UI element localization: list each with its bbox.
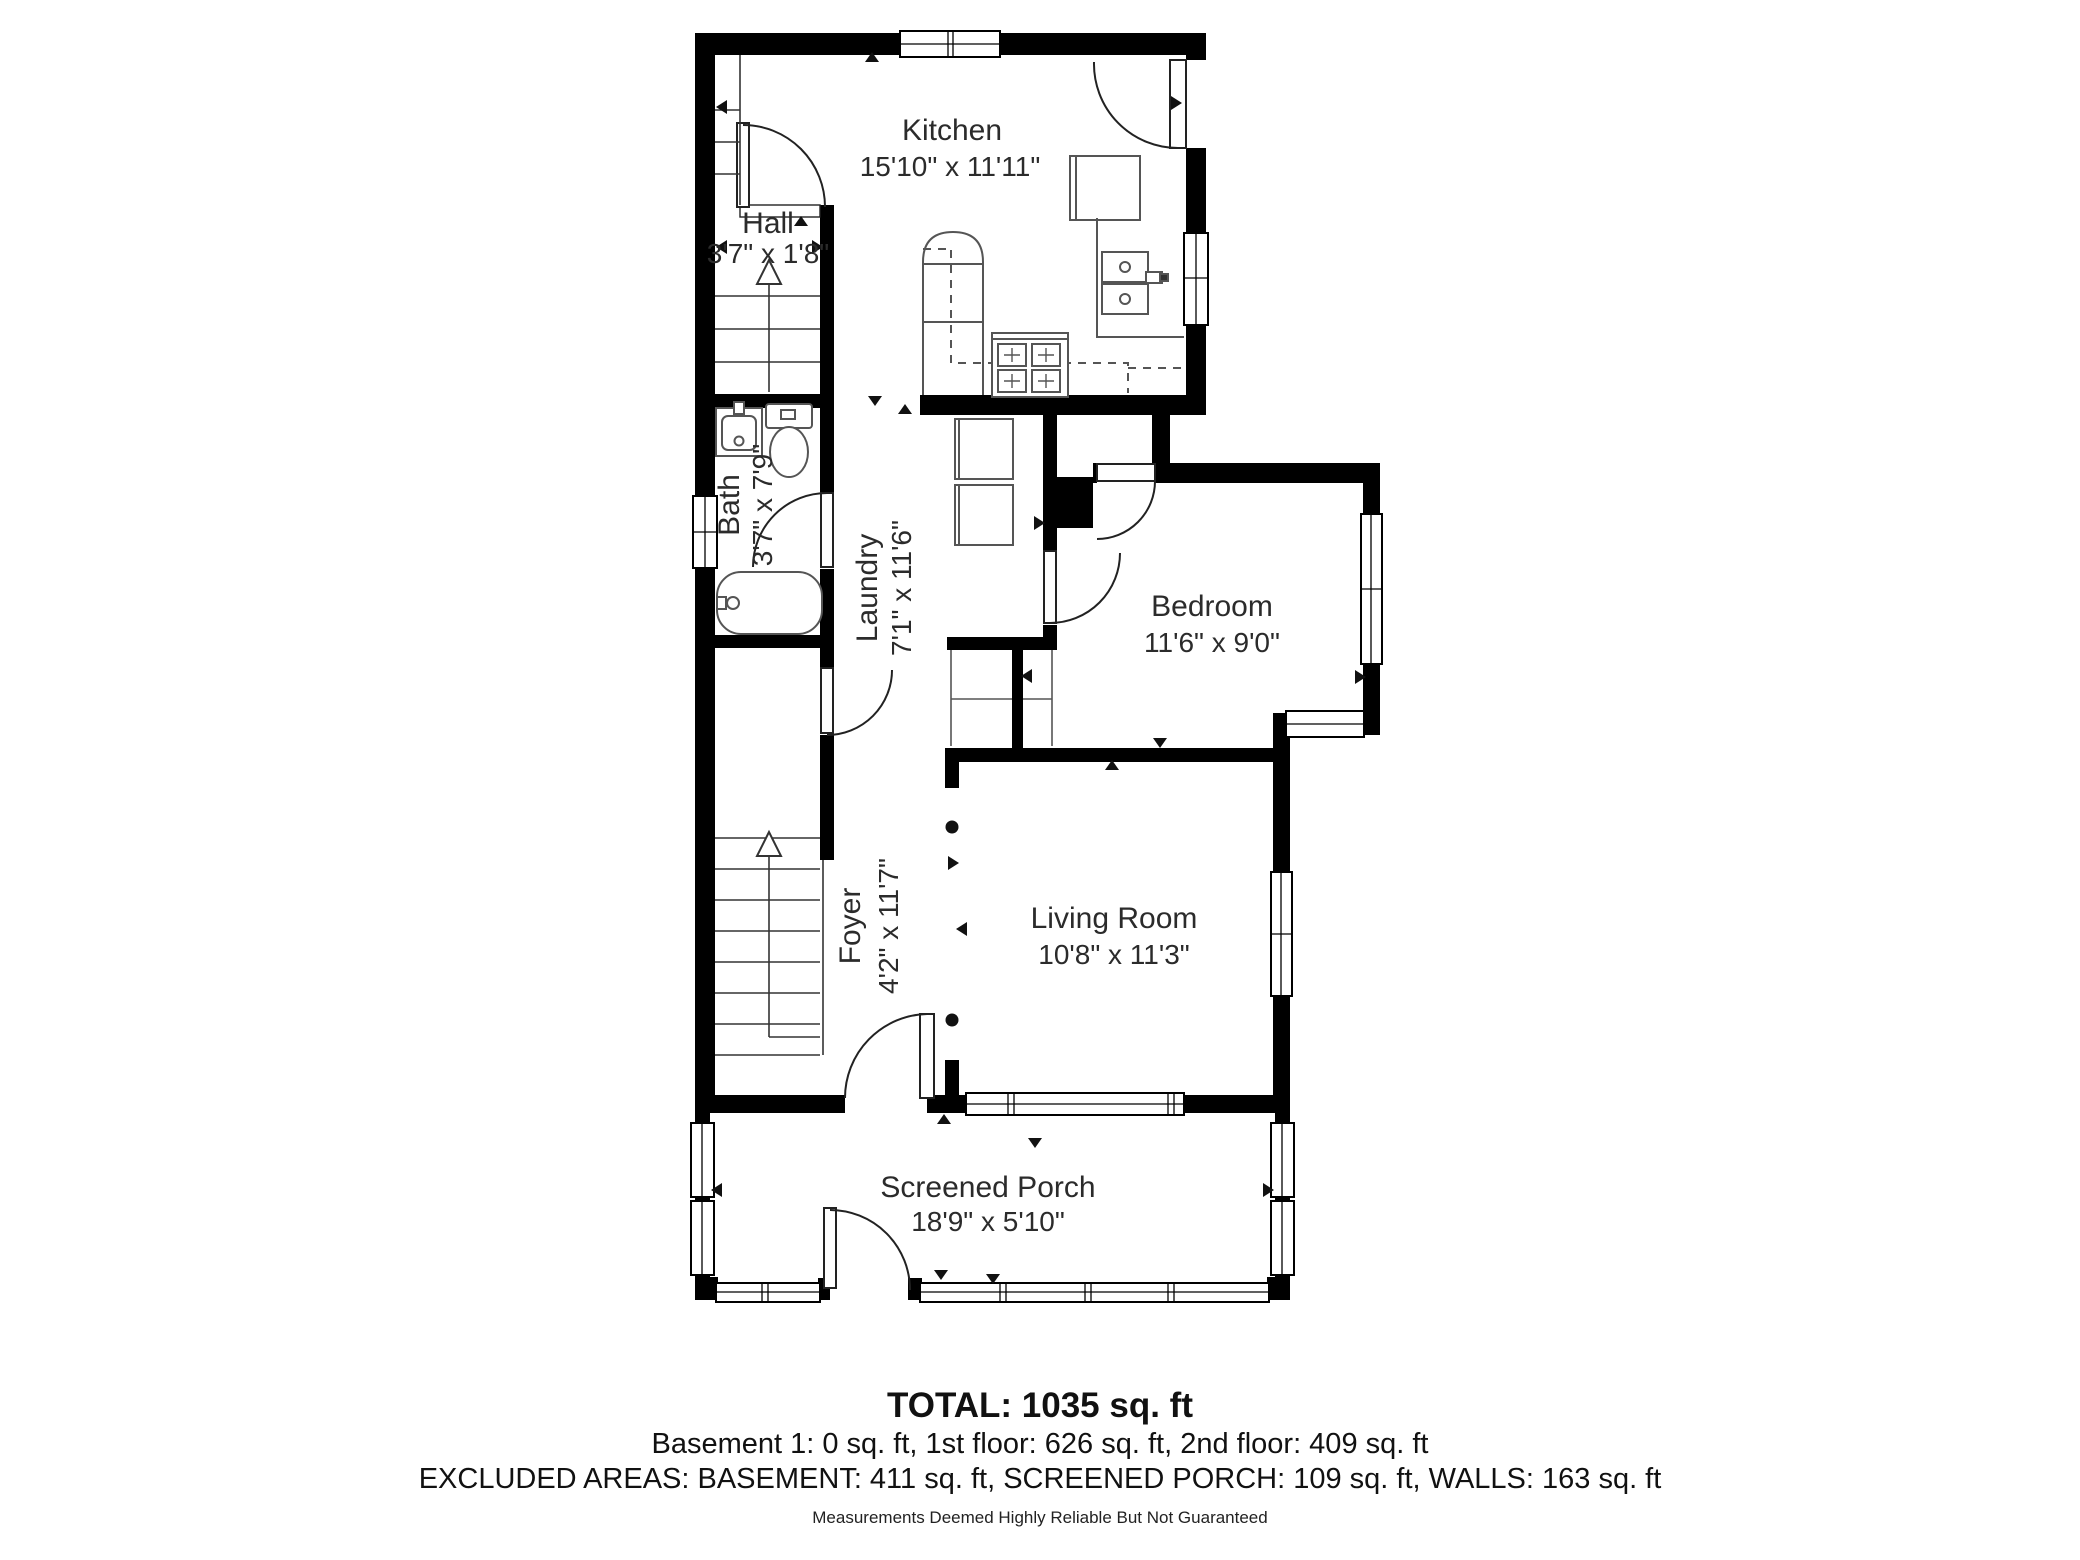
- living-room-dims: 10'8" x 11'3": [1038, 939, 1189, 970]
- hall-dims: 3'7" x 1'8": [707, 238, 829, 269]
- stove: [992, 333, 1068, 397]
- kitchen-side-window: [1184, 233, 1208, 325]
- excluded-areas: EXCLUDED AREAS: BASEMENT: 411 sq. ft, SC…: [0, 1462, 2080, 1497]
- foyer-dims: 4'2" x 11'7": [873, 858, 904, 994]
- foyer-stairs: [715, 832, 823, 1055]
- porch-screen-door: [824, 1208, 910, 1290]
- hall-stairs: [715, 260, 820, 392]
- screened-porch-label: Screened Porch: [880, 1171, 1095, 1204]
- hall-upper-door: [737, 123, 825, 217]
- bedroom-bottom-window: [1286, 711, 1364, 737]
- kitchen-window: [900, 31, 1000, 57]
- kitchen-dims: 15'10" x 11'11": [860, 151, 1041, 182]
- closets: [951, 650, 1052, 746]
- kitchen-peninsula: [923, 232, 983, 395]
- foyer-door: [821, 668, 892, 735]
- dryer: [955, 485, 1013, 545]
- porch-bottom-windows: [716, 1283, 1269, 1302]
- refrigerator: [1070, 156, 1140, 220]
- hall-label: Hall: [742, 207, 794, 240]
- floorplan-page: { "rooms": { "kitchen": {"name": "Kitche…: [0, 0, 2080, 1560]
- kitchen-label: Kitchen: [902, 114, 1002, 147]
- summary-block: TOTAL: 1035 sq. ft Basement 1: 0 sq. ft,…: [0, 1386, 2080, 1529]
- washer: [955, 419, 1013, 479]
- living-room-label: Living Room: [1031, 902, 1198, 935]
- bedroom-label: Bedroom: [1151, 590, 1273, 623]
- bath-label: Bath: [713, 474, 746, 536]
- front-door: [845, 1014, 934, 1098]
- bedroom-dims: 11'6" x 9'0": [1144, 627, 1280, 658]
- laundry-dims: 7'1" x 11'6": [886, 520, 917, 656]
- bathtub: [717, 572, 822, 634]
- laundry-label: Laundry: [851, 534, 884, 642]
- screened-porch-dims: 18'9" x 5'10": [911, 1206, 1065, 1237]
- floor-plan-diagram: Kitchen 15'10" x 11'11" Hall 3'7" x 1'8"…: [0, 0, 2080, 1560]
- living-room-porch-window: [966, 1093, 1184, 1115]
- bedroom-right-window: [1361, 514, 1382, 664]
- disclaimer-text: Measurements Deemed Highly Reliable But …: [0, 1507, 2080, 1529]
- bedroom-closet-door: [1097, 464, 1155, 539]
- bath-dims: 3'7" x 7'9": [747, 444, 778, 566]
- total-area: TOTAL: 1035 sq. ft: [0, 1386, 2080, 1426]
- laundry-bedroom-door: [1044, 551, 1120, 623]
- foyer-label: Foyer: [834, 888, 867, 965]
- floor-areas: Basement 1: 0 sq. ft, 1st floor: 626 sq.…: [0, 1426, 2080, 1462]
- living-room-window: [1271, 872, 1292, 996]
- kitchen-sink: [1102, 252, 1168, 314]
